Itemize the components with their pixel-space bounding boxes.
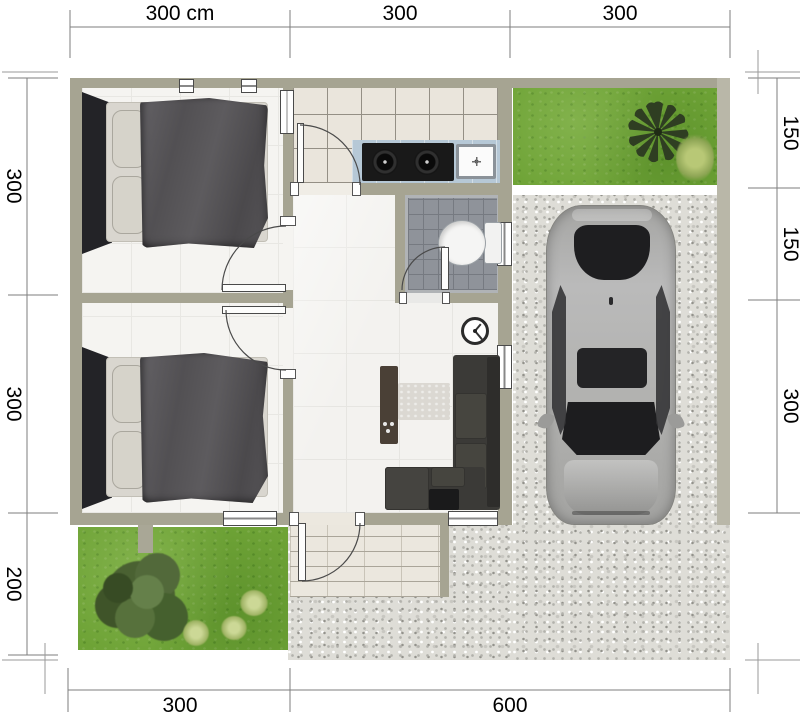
window-living-south [448,511,498,526]
door-jamb [280,216,296,226]
wall-bathroom-west [395,195,405,303]
car-side-glass-right [656,285,670,435]
door-jamb [290,182,299,196]
stove-burner [372,149,398,175]
door-jamb [280,369,296,379]
car-antenna [609,297,613,305]
coffee-table [429,489,459,510]
sofa-cushion [455,393,487,439]
sofa-cushion [431,467,465,487]
bed-blanket [140,353,268,503]
bed-2 [82,347,270,509]
porch-floor [290,523,440,597]
wall-right-boundary [717,78,730,525]
bush [183,620,209,646]
kitchen-sink [456,144,496,179]
garden-path [138,525,153,553]
kitchen-door-leaf [297,123,304,183]
car [544,205,678,525]
dim-bottom-1: 300 [162,694,197,718]
front-door-leaf [298,523,306,581]
dim-left-2: 300 [1,386,25,421]
tree [95,553,190,648]
stove-burner [414,149,440,175]
dim-right-1: 150 [778,115,802,150]
dim-top-3: 300 [602,2,637,26]
bed-pillow [112,431,146,489]
car-rear-window [574,225,650,280]
car-front-grille [572,511,650,515]
car-sunroof [577,348,647,388]
bed-pillow [112,176,146,234]
dim-right-3: 300 [778,388,802,423]
bush [676,134,714,182]
sink-drain [472,157,481,166]
car-hood [564,460,658,515]
car-windshield [562,402,660,455]
wall-right-house [498,88,512,525]
dim-top-1: 300 cm [146,2,215,26]
dim-bottom-2: 600 [492,694,527,718]
bed-1 [82,92,270,254]
sofa-backrest [487,357,500,507]
dim-right-2: 150 [778,226,802,261]
door-jamb [399,292,407,304]
dim-top-2: 300 [382,2,417,26]
wall-between-bedrooms [70,293,293,303]
kitchen-door-opening [297,183,353,195]
window-bedroom2-south [223,511,277,526]
bush [240,590,268,616]
toilet-tank [484,222,502,264]
floor-plan: 300 cm 300 300 300 300 200 150 150 300 3… [0,0,804,722]
bathroom-door-opening [404,293,444,303]
bathroom-door-leaf [441,247,449,290]
bedroom-1-door-leaf [222,284,286,292]
door-jamb [355,512,365,526]
bedroom-2-door-opening [283,308,293,370]
window-bedroom1-kitchen [280,90,294,134]
dim-left-3: 200 [1,566,25,601]
bed-blanket [140,98,268,248]
car-side-glass-left [552,285,566,435]
bedroom-2-door-leaf [222,306,286,314]
window-top-wall-b [241,79,257,93]
bedroom-1-door-opening [283,225,293,290]
kitchen-counter [352,140,500,183]
bush [221,616,247,640]
wall-top [70,78,730,88]
window-top-wall-a [179,79,194,93]
stove [362,143,454,181]
door-jamb [442,292,450,304]
dim-left-1: 300 [1,168,25,203]
sofa [385,355,500,510]
car-trunk-highlight [572,209,652,221]
wall-clock [461,317,489,345]
sofa-chaise [385,467,429,510]
wall-porch-edge [440,525,449,597]
door-jamb [352,182,361,196]
wall-hall [283,88,293,513]
clock-center [473,329,477,333]
